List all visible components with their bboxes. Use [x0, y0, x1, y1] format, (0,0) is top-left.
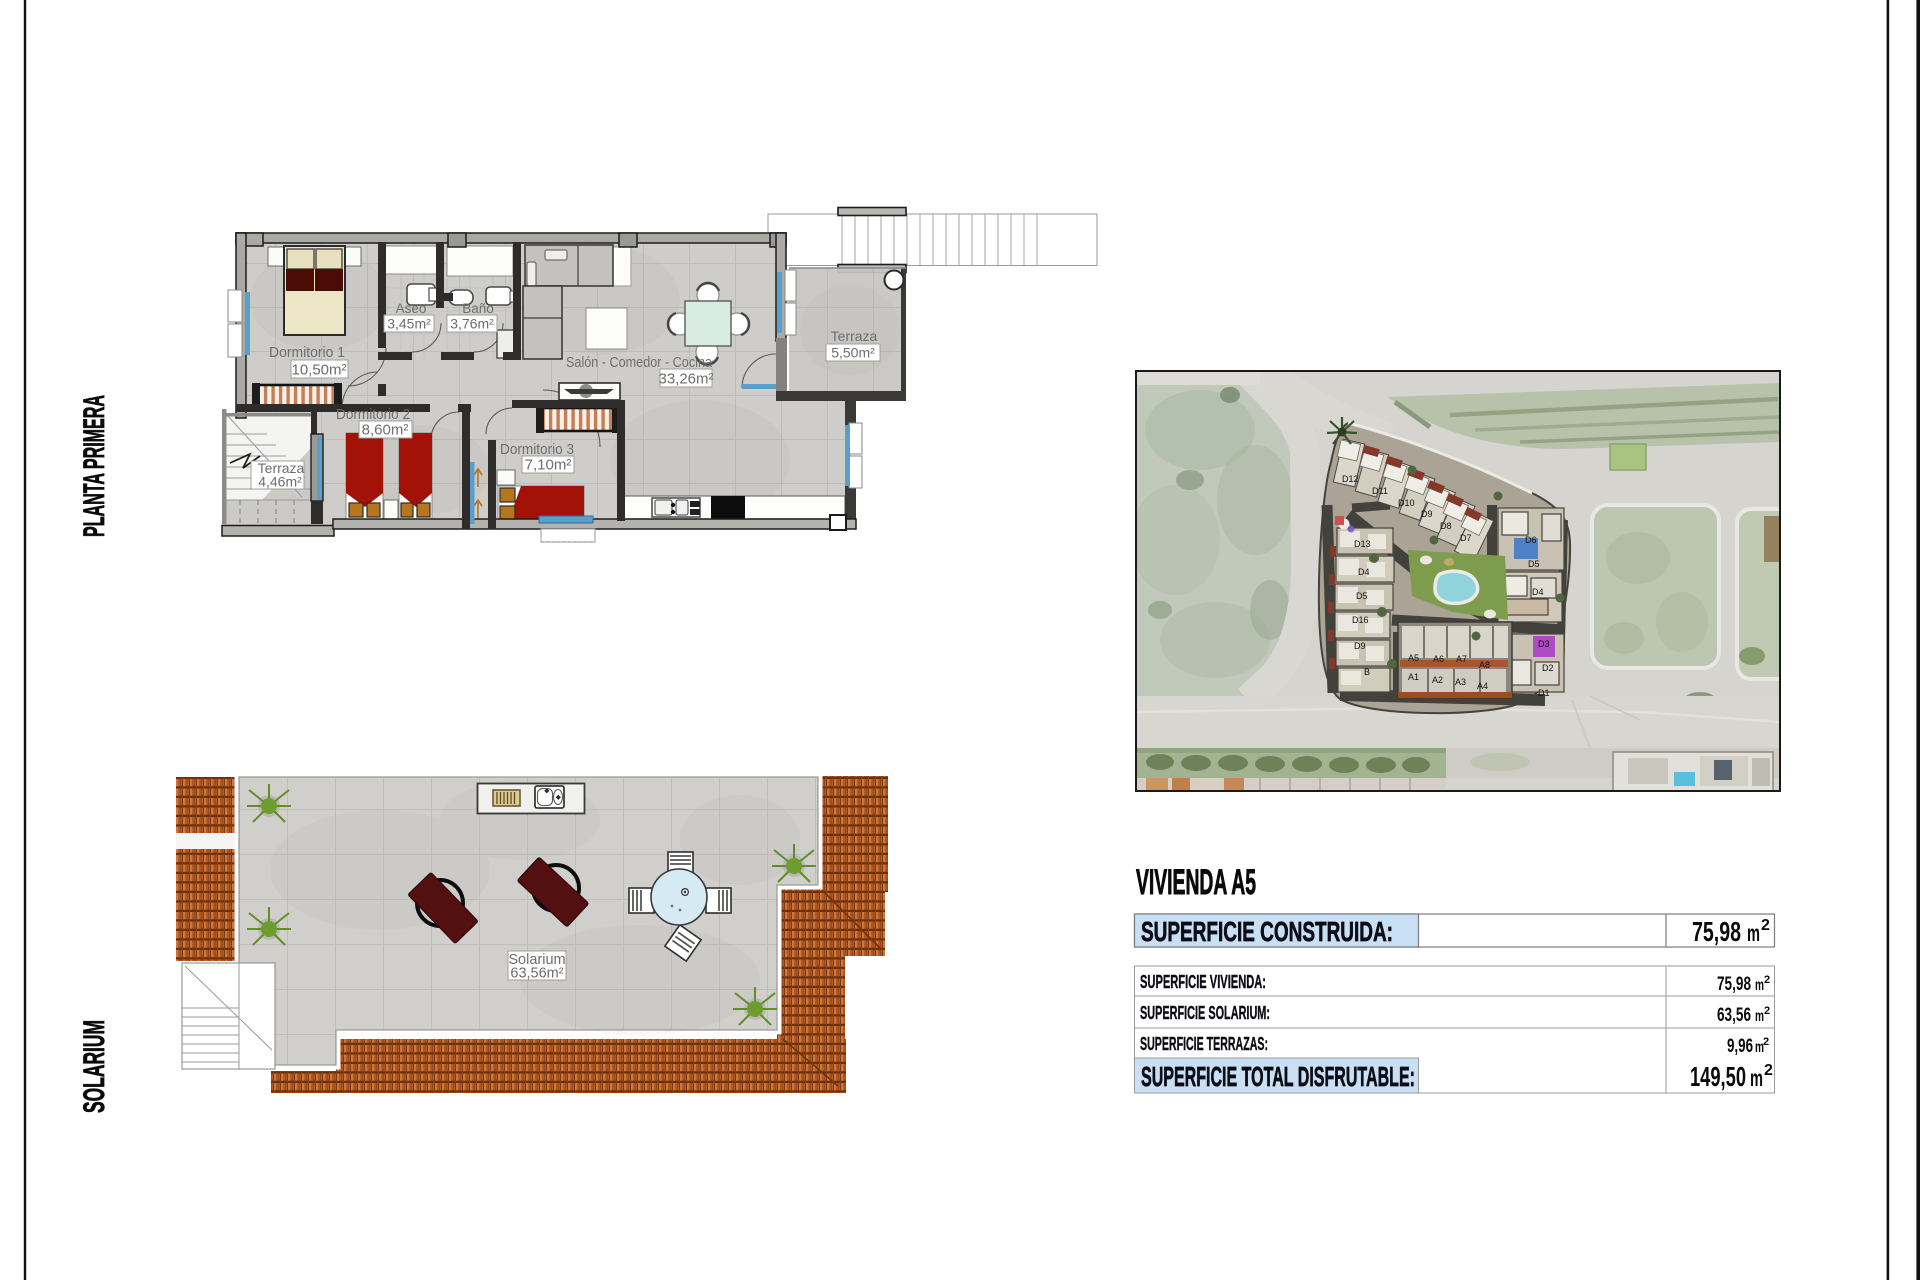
- svg-text:Baño: Baño: [462, 301, 494, 316]
- svg-text:Dormitorio 2: Dormitorio 2: [336, 406, 410, 423]
- svg-text:D8: D8: [1440, 521, 1452, 531]
- svg-text:3,45m²: 3,45m²: [387, 316, 431, 332]
- svg-text:SUPERFICIE TOTAL DISFRUTABLE:: SUPERFICIE TOTAL DISFRUTABLE:: [1141, 1061, 1415, 1092]
- svg-text:A5: A5: [1408, 653, 1419, 663]
- svg-text:3,76m²: 3,76m²: [450, 316, 494, 332]
- svg-text:D11: D11: [1372, 486, 1388, 496]
- svg-text:A7: A7: [1456, 654, 1467, 664]
- svg-text:D6: D6: [1525, 535, 1537, 545]
- svg-text:SUPERFICIE TERRAZAS:: SUPERFICIE TERRAZAS:: [1140, 1034, 1268, 1054]
- svg-text:A1: A1: [1408, 672, 1419, 682]
- svg-text:SUPERFICIE SOLARIUM:: SUPERFICIE SOLARIUM:: [1140, 1003, 1270, 1023]
- svg-text:2: 2: [1761, 917, 1770, 934]
- svg-text:SUPERFICIE VIVIENDA:: SUPERFICIE VIVIENDA:: [1140, 972, 1266, 992]
- svg-text:A3: A3: [1455, 677, 1466, 687]
- svg-text:63,56: 63,56: [1717, 1005, 1751, 1026]
- svg-text:m: m: [1750, 1065, 1763, 1091]
- svg-text:4,46m²: 4,46m²: [258, 474, 302, 490]
- svg-text:B: B: [1364, 667, 1370, 677]
- svg-text:75,98: 75,98: [1692, 916, 1741, 947]
- svg-text:VIVIENDA A5: VIVIENDA A5: [1136, 863, 1256, 902]
- svg-text:D3: D3: [1538, 639, 1550, 649]
- svg-text:A4: A4: [1477, 681, 1488, 691]
- svg-text:9,96: 9,96: [1727, 1036, 1753, 1057]
- svg-text:Terraza: Terraza: [831, 328, 878, 344]
- svg-text:D4: D4: [1358, 567, 1370, 577]
- svg-text:2: 2: [1764, 974, 1770, 986]
- svg-text:SOLARIUM: SOLARIUM: [78, 1020, 111, 1113]
- svg-text:D13: D13: [1354, 539, 1371, 549]
- svg-text:75,98: 75,98: [1717, 974, 1751, 995]
- svg-text:A2: A2: [1432, 675, 1443, 685]
- svg-text:D16: D16: [1352, 615, 1369, 625]
- svg-text:D5: D5: [1356, 591, 1368, 601]
- svg-text:63,56m²: 63,56m²: [510, 966, 563, 982]
- svg-text:A6: A6: [1433, 654, 1444, 664]
- svg-text:D5: D5: [1528, 559, 1540, 569]
- svg-text:10,50m²: 10,50m²: [291, 362, 346, 379]
- svg-text:D2: D2: [1542, 663, 1554, 673]
- svg-text:5,50m²: 5,50m²: [831, 345, 875, 361]
- svg-text:2: 2: [1764, 1062, 1773, 1079]
- svg-text:D9: D9: [1421, 509, 1433, 519]
- svg-text:8,60m²: 8,60m²: [362, 422, 409, 439]
- svg-text:m: m: [1747, 920, 1760, 946]
- svg-text:D12: D12: [1342, 474, 1359, 484]
- svg-text:7,10m²: 7,10m²: [525, 457, 572, 474]
- svg-text:A8: A8: [1479, 660, 1490, 670]
- svg-text:PLANTA PRIMERA: PLANTA PRIMERA: [78, 395, 111, 537]
- svg-text:Aseo: Aseo: [396, 301, 427, 316]
- svg-text:2: 2: [1763, 1036, 1769, 1048]
- svg-text:m: m: [1755, 1008, 1764, 1025]
- svg-text:33,26m²: 33,26m²: [658, 371, 713, 388]
- svg-text:Dormitorio 3: Dormitorio 3: [500, 441, 574, 458]
- svg-text:D9: D9: [1354, 641, 1366, 651]
- svg-text:149,50: 149,50: [1690, 1061, 1746, 1092]
- svg-text:2: 2: [1764, 1005, 1770, 1017]
- svg-text:m: m: [1755, 977, 1764, 994]
- svg-text:Dormitorio 1: Dormitorio 1: [269, 344, 345, 361]
- svg-text:D7: D7: [1460, 533, 1472, 543]
- svg-text:Salón - Comedor - Cocina: Salón - Comedor - Cocina: [566, 354, 713, 371]
- svg-text:D10: D10: [1398, 498, 1415, 508]
- svg-text:SUPERFICIE CONSTRUIDA:: SUPERFICIE CONSTRUIDA:: [1141, 916, 1393, 947]
- svg-text:D1: D1: [1538, 688, 1550, 698]
- svg-text:D4: D4: [1532, 587, 1544, 597]
